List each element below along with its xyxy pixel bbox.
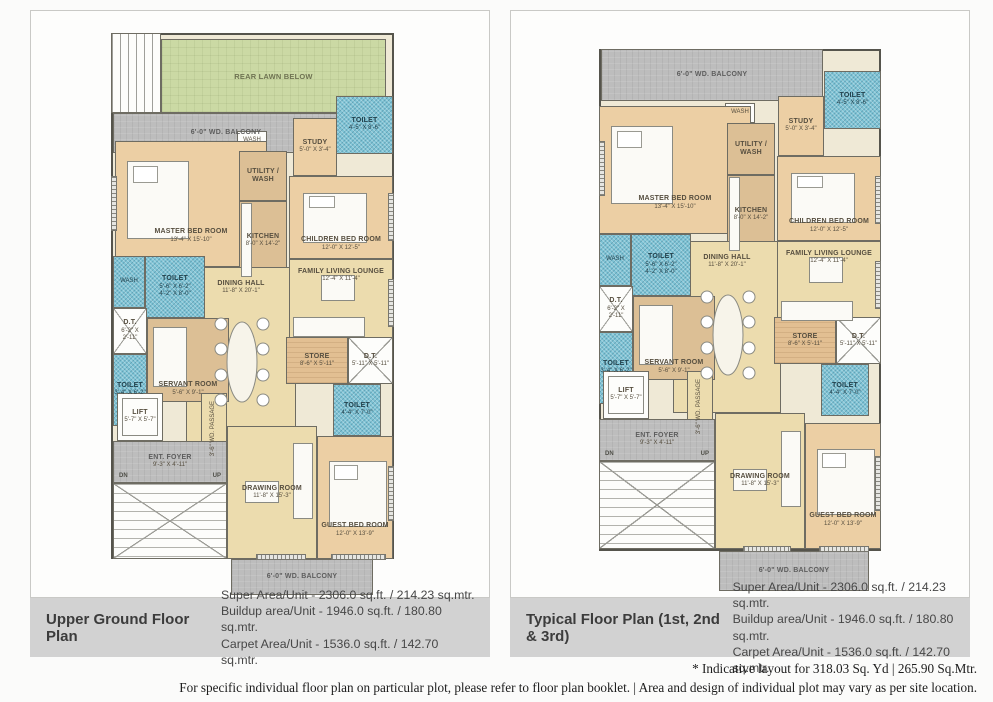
room-label: 6'-0" WD. BALCONY: [267, 573, 338, 581]
room-dims: 4'-2" X 8'-0": [159, 291, 190, 299]
room-dims: 12'-0" X 13'-9": [824, 521, 862, 529]
room-label: STORE: [793, 333, 818, 341]
footer-site-location-text: For specific individual floor plan on pa…: [179, 678, 977, 697]
room-dims: 4'-4" X 7'-0": [341, 410, 372, 418]
room-label: CHILDREN BED ROOM: [789, 218, 869, 226]
room-dressing-right: D.T. 5'-11" X 5'-11": [836, 317, 881, 364]
room-label: SERVANT ROOM: [645, 359, 704, 367]
room-label: D.T.: [364, 353, 377, 361]
room-dressing-right: D.T. 5'-11" X 5'-11": [348, 337, 393, 384]
sofa-graphic: [293, 443, 313, 519]
room-label: STUDY: [303, 139, 328, 147]
room-study: STUDY 5'-0" X 3'-4": [293, 118, 337, 176]
buildup-area-text: Buildup area/Unit - 1946.0 sq.ft. / 180.…: [221, 603, 476, 635]
room-label: GUEST BED ROOM: [809, 512, 876, 520]
room-dims: 12'-0" X 12'-5": [322, 245, 360, 253]
room-label: WASH: [120, 278, 138, 286]
room-dims: 5'-0" X 3'-4": [785, 126, 816, 134]
room-dims: 4'-2" X 8'-0": [645, 269, 676, 277]
room-label: ENT. FOYER: [635, 432, 678, 440]
window-marker: [875, 176, 881, 224]
room-label: TOILET: [648, 253, 674, 261]
room-label: TOILET: [603, 360, 629, 368]
dining-table-graphic: [697, 279, 759, 391]
room-wash-left: WASH: [113, 256, 145, 308]
room-dims: 12'-0" X 13'-9": [336, 531, 374, 539]
staircase-top-graphic: [111, 33, 161, 113]
room-dims: 5'-11" X 5'-11": [352, 361, 389, 369]
sofa-graphic: [781, 431, 801, 507]
room-label: STUDY: [789, 118, 814, 126]
bed-graphic: [639, 305, 673, 365]
room-label: FAMILY LIVING LOUNGE: [298, 268, 384, 276]
room-dims: 8'-0" X 14'-2": [246, 241, 281, 249]
stairs-up-label: UP: [213, 473, 221, 479]
footer-disclaimer: * Indicative layout for 318.03 Sq. Yd | …: [179, 659, 977, 697]
bed-graphic: [153, 327, 187, 387]
room-label: LIFT: [132, 409, 148, 417]
room-toilet-mid: TOILET 5'-6" X 6'-2" 4'-2" X 8'-0": [145, 256, 205, 318]
window-marker: [599, 141, 605, 196]
room-label: TOILET: [352, 117, 378, 125]
window-marker: [111, 176, 117, 231]
page-root: { "colors": { "toilet_blue": "#7fc4d6", …: [0, 0, 993, 702]
room-label: 6'-0" WD. BALCONY: [677, 71, 748, 79]
room-dims: 9'-3" X 4'-11": [640, 440, 674, 448]
room-label: MASTER BED ROOM: [155, 228, 228, 236]
room-label: TOILET: [832, 382, 858, 390]
room-dims: 5'-7" X 5'-7": [124, 417, 155, 425]
window-marker: [875, 261, 881, 309]
window-marker: [388, 466, 394, 521]
room-label: WASH: [606, 256, 624, 264]
stairs-up-label: UP: [701, 451, 709, 457]
room-dims: 5'-0" X 3'-4": [299, 147, 330, 155]
room-toilet-right: TOILET 4'-4" X 7'-0": [821, 364, 869, 416]
floor-plan-panel-upper-ground: REAR LAWN BELOW 6'-0" WD. BALCONY TOILET…: [30, 10, 490, 598]
room-wash-left: WASH: [599, 234, 631, 286]
window-marker: [256, 554, 306, 560]
room-dims: 8'-6" X 5'-11": [300, 361, 334, 369]
room-label: MASTER BED ROOM: [639, 195, 712, 203]
room-label: 6'-0" WD. BALCONY: [759, 567, 830, 575]
room-label: D.T.: [609, 297, 622, 305]
sofa-graphic: [293, 317, 365, 337]
room-dims: 13'-4" X 15'-10": [170, 237, 211, 245]
room-label: WASH: [731, 109, 749, 117]
room-dims: 5'-7" X 5'-7": [610, 395, 641, 403]
staircase-bottom-graphic: [113, 483, 227, 559]
room-label: STORE: [305, 353, 330, 361]
buildup-area-text: Buildup area/Unit - 1946.0 sq.ft. / 180.…: [733, 611, 956, 643]
room-dims: 6'-2" X 2'-11": [114, 328, 146, 343]
room-label: KITCHEN: [735, 207, 768, 215]
room-label: FAMILY LIVING LOUNGE: [786, 250, 872, 258]
room-dims: 12'-4" X 11'-4": [322, 276, 359, 284]
room-utility-wash: UTILITY / WASH: [239, 151, 287, 201]
room-label: 6'-0" WD. BALCONY: [191, 129, 262, 137]
room-toilet-right: TOILET 4'-4" X 7'-0": [333, 384, 381, 436]
room-label: LIFT: [618, 387, 634, 395]
room-label: DINING HALL: [703, 254, 750, 262]
room-dims: 11'-8" X 20'-1": [222, 288, 259, 296]
room-label: D.T.: [123, 319, 136, 327]
room-lift: LIFT 5'-7" X 5'-7": [603, 371, 649, 419]
room-dims: 5'-6" X 6'-2": [645, 262, 676, 270]
bed-graphic: [329, 461, 387, 527]
room-dims: 9'-3" X 4'-11": [153, 462, 187, 470]
room-lift: LIFT 5'-7" X 5'-7": [117, 393, 163, 441]
room-top-balcony: 6'-0" WD. BALCONY: [601, 49, 823, 101]
room-label: UTILITY / WASH: [240, 168, 286, 185]
bed-graphic: [611, 126, 673, 204]
room-label: TOILET: [117, 382, 143, 390]
room-label: CHILDREN BED ROOM: [301, 236, 381, 244]
room-label: DRAWING ROOM: [242, 485, 302, 493]
caption-band-typical: Typical Floor Plan (1st, 2nd & 3rd) Supe…: [510, 598, 970, 657]
room-label: 3'-6" WD. PASSAGE: [210, 401, 218, 456]
floor-plan-drawing-upper-ground: REAR LAWN BELOW 6'-0" WD. BALCONY TOILET…: [31, 11, 489, 597]
room-dims: 13'-4" X 15'-10": [654, 204, 695, 212]
room-toilet-top: TOILET 4'-5" X 8'-6": [824, 71, 881, 129]
room-dims: 5'-11" X 5'-11": [840, 341, 877, 349]
dining-table-graphic: [211, 306, 273, 418]
room-dims: 12'-4" X 11'-4": [810, 258, 847, 266]
room-label: GUEST BED ROOM: [321, 522, 388, 530]
room-dims: 4'-4" X 7'-0": [829, 390, 860, 398]
room-dims: 11'-8" X 20'-1": [708, 262, 745, 270]
super-area-text: Super Area/Unit - 2306.0 sq.ft. / 214.23…: [733, 579, 956, 611]
super-area-text: Super Area/Unit - 2306.0 sq.ft. / 214.23…: [221, 587, 476, 603]
room-dims: 8'-6" X 5'-11": [788, 341, 822, 349]
room-store: STORE 8'-6" X 5'-11": [774, 317, 836, 364]
room-dims: 11'-8" X 15'-3": [741, 481, 778, 489]
room-label: DRAWING ROOM: [730, 473, 790, 481]
room-dims: 8'-0" X 14'-2": [734, 215, 769, 223]
room-label: UTILITY / WASH: [728, 141, 774, 158]
floor-plan-drawing-typical: 6'-0" WD. BALCONY TOILET 4'-5" X 8'-6" S…: [511, 11, 969, 597]
room-label: 3'-6" WD. PASSAGE: [696, 379, 704, 434]
room-label: WASH: [243, 137, 261, 145]
room-label: REAR LAWN BELOW: [234, 72, 312, 81]
area-spec-block: Super Area/Unit - 2306.0 sq.ft. / 214.23…: [221, 587, 476, 668]
room-dims: 5'-6" X 9'-1": [658, 368, 689, 376]
window-marker: [743, 546, 791, 552]
plan-title: Upper Ground Floor Plan: [46, 611, 221, 645]
room-dressing-left: D.T. 6'-2" X 2'-11": [113, 308, 147, 354]
room-label: D.T.: [852, 333, 865, 341]
stairs-dn-label: DN: [119, 473, 128, 479]
room-study: STUDY 5'-0" X 3'-4": [778, 96, 824, 156]
room-utility-wash: UTILITY / WASH: [727, 123, 775, 175]
plan-title: Typical Floor Plan (1st, 2nd & 3rd): [526, 611, 733, 645]
sofa-graphic: [781, 301, 853, 321]
window-marker: [388, 279, 394, 327]
floor-plan-panel-typical: 6'-0" WD. BALCONY TOILET 4'-5" X 8'-6" S…: [510, 10, 970, 598]
room-label: KITCHEN: [247, 233, 280, 241]
bed-graphic: [791, 173, 855, 223]
room-dims: 12'-0" X 12'-5": [810, 227, 848, 235]
room-dims: 6'-2" X 2'-11": [600, 306, 632, 321]
room-label: SERVANT ROOM: [159, 381, 218, 389]
staircase-bottom-graphic: [599, 461, 715, 549]
room-label: TOILET: [344, 402, 370, 410]
caption-band-upper-ground: Upper Ground Floor Plan Super Area/Unit …: [30, 598, 490, 657]
room-dims: 3'-4" X 6'-2": [600, 368, 631, 376]
window-marker: [331, 554, 386, 560]
room-toilet-top: TOILET 4'-5" X 8'-6": [336, 96, 393, 154]
room-dims: 11'-8" X 15'-3": [253, 493, 290, 501]
window-marker: [388, 193, 394, 241]
window-marker: [875, 456, 881, 511]
room-label: DINING HALL: [217, 280, 264, 288]
room-label: TOILET: [162, 275, 188, 283]
footer-indicative-layout-text: * Indicative layout for 318.03 Sq. Yd | …: [179, 659, 977, 678]
room-dims: 5'-6" X 9'-1": [172, 390, 203, 398]
room-toilet-mid: TOILET 5'-6" X 6'-2" 4'-2" X 8'-0": [631, 234, 691, 296]
window-marker: [819, 546, 869, 552]
room-dims: 4'-5" X 8'-6": [837, 100, 868, 108]
room-label: TOILET: [840, 92, 866, 100]
room-dims: 3'-4" X 6'-2": [114, 390, 145, 398]
room-store: STORE 8'-6" X 5'-11": [286, 337, 348, 384]
stairs-dn-label: DN: [605, 451, 614, 457]
room-dims: 5'-6" X 6'-2": [159, 284, 190, 292]
room-dims: 4'-5" X 8'-6": [349, 125, 380, 133]
room-label: ENT. FOYER: [148, 454, 191, 462]
bed-graphic: [817, 449, 875, 515]
room-dressing-left: D.T. 6'-2" X 2'-11": [599, 286, 633, 332]
